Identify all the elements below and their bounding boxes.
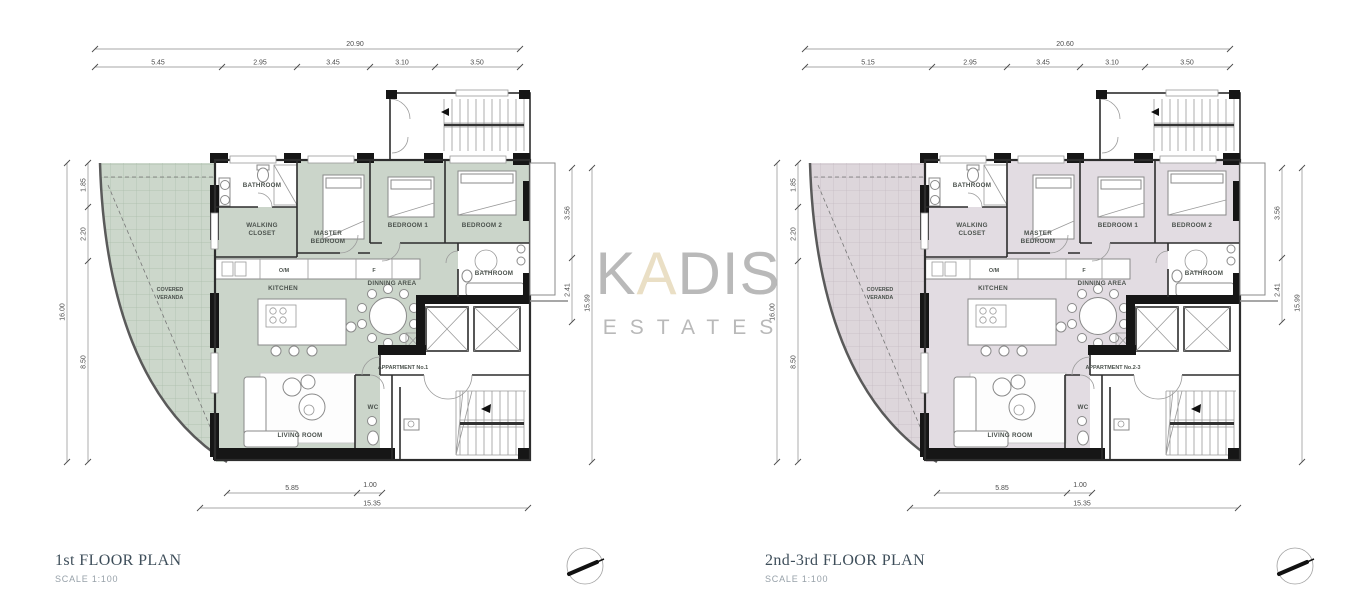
bathtub-icon	[1176, 283, 1234, 296]
north-arrow-icon	[567, 548, 604, 584]
counter-om-label: O/M	[279, 268, 290, 274]
dim-bottom-seg2: 1.00	[363, 482, 377, 489]
sink-icon	[1078, 417, 1087, 426]
toilet-icon	[1172, 270, 1182, 282]
stair-direction-arrow	[441, 108, 449, 116]
dim-bottom-seg1: 5.85	[285, 485, 299, 492]
dim-left-seg3: 8.50	[791, 355, 798, 369]
plan-scale: SCALE 1:100	[765, 574, 828, 584]
sofa	[954, 377, 976, 435]
dim-top-seg4: 3.10	[395, 60, 409, 67]
kadis-watermark: KADIS ESTATES	[566, 244, 810, 340]
walking-closet-label-2: CLOSET	[248, 230, 275, 237]
dim-left-seg1: 1.85	[81, 178, 88, 192]
master-bedroom-label-2: BEDROOM	[1021, 238, 1056, 245]
wc-label: WC	[368, 404, 379, 411]
sofa	[244, 377, 266, 435]
bedroom1-label: BEDROOM 1	[388, 222, 429, 229]
master-bedroom-label-2: BEDROOM	[311, 238, 346, 245]
dim-left-seg2: 2.20	[791, 227, 798, 241]
apartment-number-label: APPARTMENT No.1	[378, 365, 428, 371]
toilet-icon	[368, 431, 379, 445]
bathroom-top-label: BATHROOM	[953, 182, 992, 189]
bedroom2-label: BEDROOM 2	[462, 222, 503, 229]
dim-top-total: 20.60	[1056, 41, 1074, 48]
walking-closet-label-1: WALKING	[956, 222, 987, 229]
toilet-icon	[968, 168, 979, 182]
sink-icon	[931, 181, 940, 190]
watermark-subtitle: ESTATES	[566, 316, 810, 340]
dim-top-seg5: 3.50	[470, 60, 484, 67]
stair-direction-arrow	[1151, 108, 1159, 116]
kitchen-label: KITCHEN	[978, 285, 1008, 292]
top-stairwell	[390, 90, 530, 160]
toilet-icon	[1078, 431, 1089, 445]
toilet-icon	[462, 270, 472, 282]
plan-1st-floor: COVERED VERANDA	[20, 35, 660, 601]
plan-title: 1st FLOOR PLAN	[55, 552, 182, 570]
veranda-label-line2: VERANDA	[157, 295, 184, 301]
sink-icon	[931, 196, 940, 205]
bedroom1-label: BEDROOM 1	[1098, 222, 1139, 229]
covered-veranda: COVERED VERANDA	[100, 163, 227, 462]
dim-right-seg1: 3.56	[1275, 206, 1282, 220]
bathtub-icon	[466, 283, 524, 296]
covered-veranda: COVERED VERANDA	[810, 163, 937, 462]
dim-top-seg3: 3.45	[1036, 60, 1050, 67]
plan-scale: SCALE 1:100	[55, 574, 118, 584]
side-balcony	[1240, 163, 1265, 295]
watermark-letter-k: K	[595, 240, 636, 307]
sink-icon	[368, 417, 377, 426]
counter-om-label: O/M	[989, 268, 1000, 274]
living-room-label: LIVING ROOM	[277, 432, 322, 439]
watermark-brand: KADIS	[566, 244, 810, 304]
north-arrow-icon	[1277, 548, 1314, 584]
dim-top-total: 20.90	[346, 41, 364, 48]
bedroom2-label: BEDROOM 2	[1172, 222, 1213, 229]
top-stairwell	[1100, 90, 1240, 160]
dim-bottom-seg2: 1.00	[1073, 482, 1087, 489]
dim-top-seg1: 5.15	[861, 60, 875, 67]
dim-left-seg3: 8.50	[81, 355, 88, 369]
sink-icon	[221, 196, 230, 205]
dim-right-seg1: 3.56	[565, 206, 572, 220]
dim-top-seg2: 2.95	[963, 60, 977, 67]
veranda-label-line1: COVERED	[867, 287, 894, 293]
walking-closet-label-2: CLOSET	[958, 230, 985, 237]
kitchen-counter: O/M F	[215, 259, 420, 279]
dining-area-label: DINNING AREA	[368, 280, 417, 287]
dim-top-seg4: 3.10	[1105, 60, 1119, 67]
dim-top-seg3: 3.45	[326, 60, 340, 67]
wc-label: WC	[1078, 404, 1089, 411]
floor-plan-drawing-2: COVERED VERANDA	[730, 35, 1365, 601]
bathroom-mid-label: BATHROOM	[1185, 270, 1224, 277]
walking-closet-label-1: WALKING	[246, 222, 277, 229]
sink-icon	[221, 181, 230, 190]
bathroom-mid-label: BATHROOM	[475, 270, 514, 277]
living-room-label: LIVING ROOM	[987, 432, 1032, 439]
dining-area-label: DINNING AREA	[1078, 280, 1127, 287]
floor-plan-sheet: COVERED VERANDA	[0, 0, 1365, 612]
master-bedroom-label-1: MASTER	[314, 230, 342, 237]
dim-left-seg1: 1.85	[791, 178, 798, 192]
master-bedroom-label-1: MASTER	[1024, 230, 1052, 237]
floor-plan-drawing-1: COVERED VERANDA	[20, 35, 660, 601]
watermark-letter-a: A	[636, 240, 677, 307]
toilet-icon	[258, 168, 269, 182]
dim-top-seg2: 2.95	[253, 60, 267, 67]
dim-bottom-seg1: 5.85	[995, 485, 1009, 492]
plan-2nd-3rd-floor: COVERED VERANDA	[730, 35, 1365, 601]
dim-right-seg2: 2.41	[1275, 283, 1282, 297]
bathroom-top-label: BATHROOM	[243, 182, 282, 189]
kitchen-label: KITCHEN	[268, 285, 298, 292]
side-balcony	[530, 163, 555, 295]
dim-left-seg2: 2.20	[81, 227, 88, 241]
veranda-label-line1: COVERED	[157, 287, 184, 293]
veranda-label-line2: VERANDA	[867, 295, 894, 301]
watermark-letters-dis: DIS	[678, 240, 781, 307]
dim-right-total: 15.99	[1295, 294, 1302, 312]
plan-title: 2nd-3rd FLOOR PLAN	[765, 552, 925, 570]
apartment-number-label: APPARTMENT No.2-3	[1085, 365, 1140, 371]
dim-bottom-total: 15.35	[1073, 501, 1091, 508]
dim-top-seg5: 3.50	[1180, 60, 1194, 67]
kitchen-counter: O/M F	[925, 259, 1130, 279]
dim-top-seg1: 5.45	[151, 60, 165, 67]
dim-left-total: 16.00	[60, 303, 67, 321]
dim-bottom-total: 15.35	[363, 501, 381, 508]
